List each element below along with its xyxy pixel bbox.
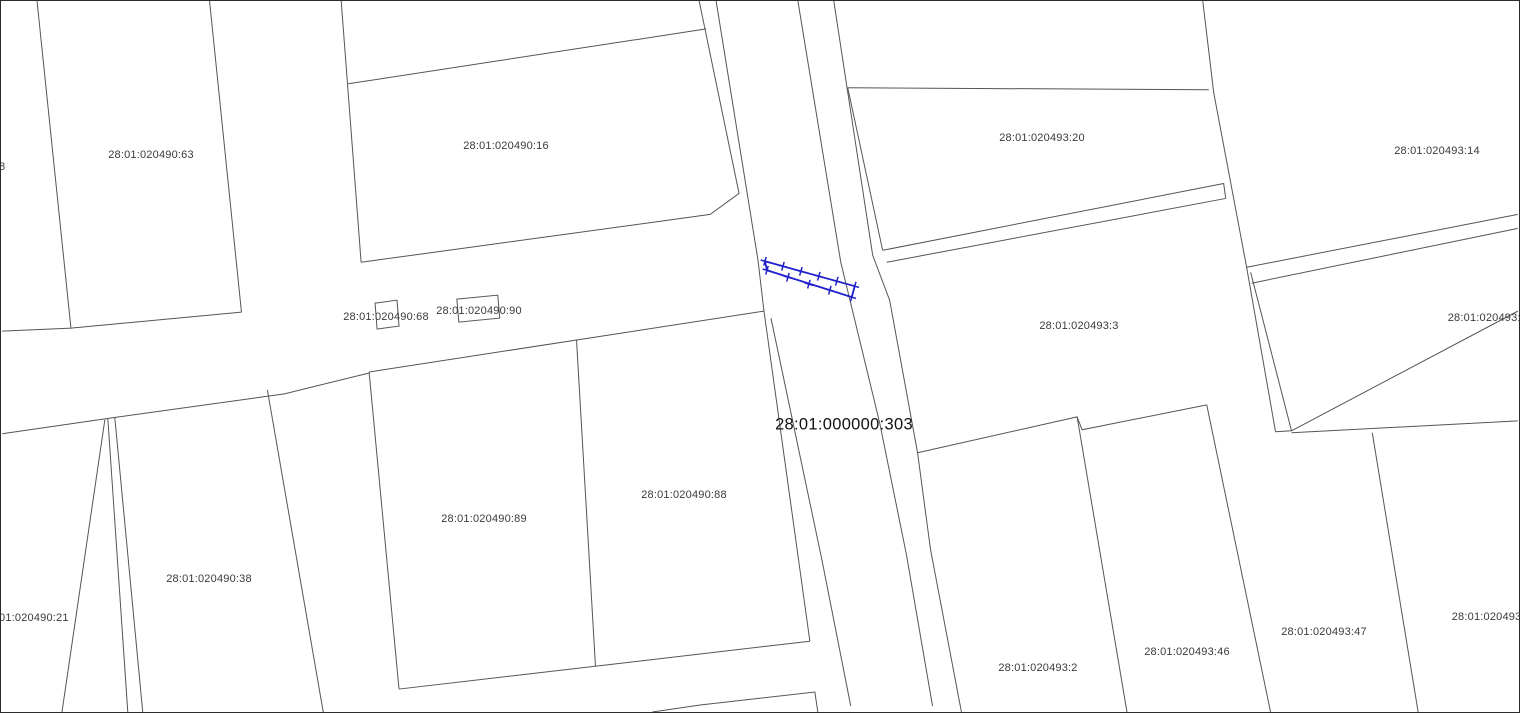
parcel-label-020490-89: 28:01:020490:89: [441, 513, 527, 525]
boundary-lower-road-edge: [2, 373, 369, 434]
boundary-14-8-strip-lower: [1252, 228, 1518, 283]
parcel-label-020493-46: 28:01:020493:46: [1144, 646, 1230, 658]
boundary-road-right-edge: [834, 1, 962, 712]
parcel-label-020493-3: 28:01:020493:3: [1039, 320, 1118, 332]
parcel-label-020490-90: 28:01:020490:90: [436, 305, 522, 317]
boundary-14-left: [1203, 1, 1276, 432]
parcel-label-020490-16: 28:01:020490:16: [463, 140, 549, 152]
parcel-label-020490-21: 01:020490:21: [0, 612, 69, 624]
boundary-89-left: [369, 372, 399, 689]
parcel-label-020490-38: 28:01:020490:38: [166, 573, 252, 585]
boundary-bottom-sliver: [652, 692, 818, 712]
boundary-road-strip-left: [716, 1, 810, 641]
parcel-label-020493-3x: 28:01:020493:3: [1452, 611, 1520, 623]
boundary-3x-top: [1292, 421, 1518, 433]
boundary-46-47-divider: [1207, 405, 1271, 712]
boundary-63-left: [37, 1, 71, 328]
parcel-label-020490-68: 28:01:020490:68: [343, 311, 429, 323]
parcel-label-020490-63: 28:01:020490:63: [108, 149, 194, 161]
parcel-label-020493-20: 28:01:020493:20: [999, 132, 1085, 144]
boundary-road-strip-left-inner: [771, 318, 851, 706]
boundary-20-left: [848, 88, 883, 251]
parcel-label-020493-47: 28:01:020493:47: [1281, 626, 1367, 638]
boundary-38-left-inner: [115, 418, 143, 712]
selected-parcel-outline: [765, 261, 855, 297]
boundary-47-3x-divider: [1372, 433, 1418, 712]
boundary-8-bottom: [1292, 311, 1518, 431]
boundary-38-right: [267, 390, 323, 712]
parcel-label-020493-14: 28:01:020493:14: [1394, 145, 1480, 157]
boundary-89-88-divider: [577, 340, 596, 666]
boundary-21-right: [62, 420, 105, 712]
boundary-16-top: [348, 29, 706, 84]
boundary-20-bottom: [883, 183, 1226, 250]
boundary-16-left: [341, 1, 361, 262]
selected-parcel-label[interactable]: 28:01:000000:303: [775, 416, 913, 435]
boundary-38-left-outer: [108, 419, 128, 712]
parcel-label-020490-88: 28:01:020490:88: [641, 489, 727, 501]
parcel-label-edge-8: 8: [0, 161, 5, 173]
boundary-2-46-divider: [1077, 417, 1127, 712]
boundary-3-bottom: [918, 405, 1207, 453]
map-linework-layer: [1, 1, 1519, 712]
boundary-3-top: [887, 198, 1226, 262]
boundary-road-left-edge: [798, 1, 933, 706]
boundary-63-bottom: [2, 312, 241, 331]
boundary-16-right-bottom: [361, 1, 739, 262]
parcel-boundaries: [2, 1, 1518, 712]
boundary-notch-cap: [1276, 431, 1292, 432]
parcel-label-020493-2: 28:01:020493:2: [998, 662, 1077, 674]
cadastral-map-canvas[interactable]: 8 28:01:020490:63 28:01:020490:16 28:01:…: [0, 0, 1520, 713]
boundary-63-right: [210, 1, 242, 312]
boundary-88-bottom: [399, 641, 810, 689]
boundary-14-8-strip-upper: [1247, 214, 1518, 267]
parcel-label-020493-8: 28:01:020493:8: [1448, 312, 1520, 324]
boundary-20-top: [848, 88, 1209, 90]
